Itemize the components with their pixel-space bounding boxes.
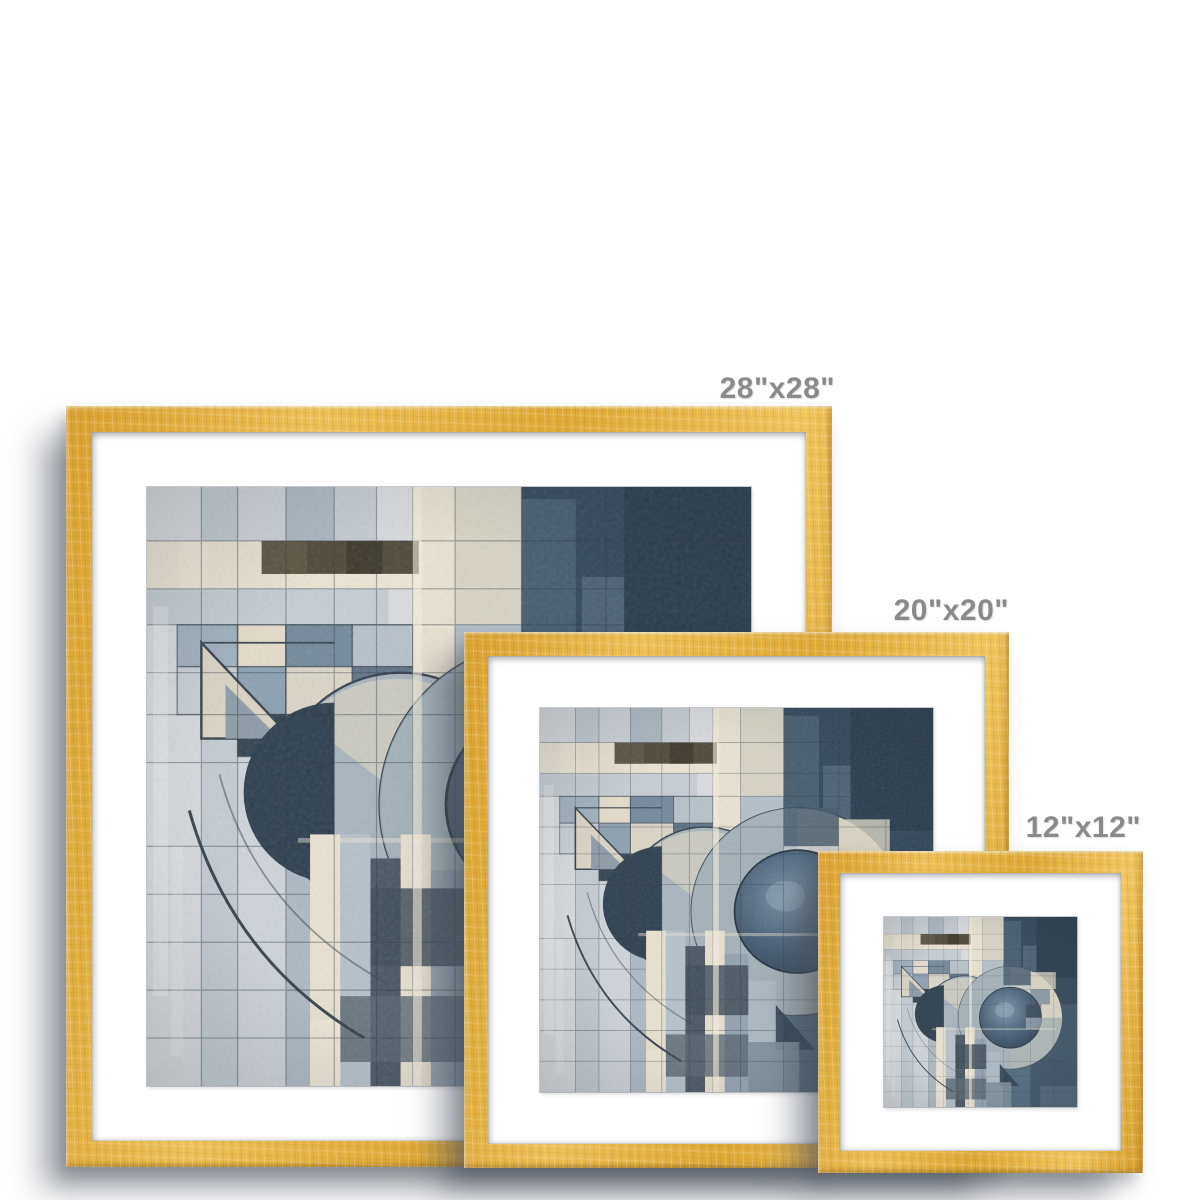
- mat-12: [840, 873, 1121, 1151]
- abstract-artwork: [884, 917, 1077, 1107]
- artwork-image-12: [884, 917, 1077, 1107]
- size-label-28x28: 28"x28": [720, 374, 835, 404]
- size-label-20x20: 20"x20": [894, 596, 1009, 626]
- product-mockup: 28"x28" 20"x20" 12"x12": [0, 0, 1200, 1200]
- size-label-12x12: 12"x12": [1026, 813, 1141, 843]
- frame-12-inch: [818, 851, 1143, 1173]
